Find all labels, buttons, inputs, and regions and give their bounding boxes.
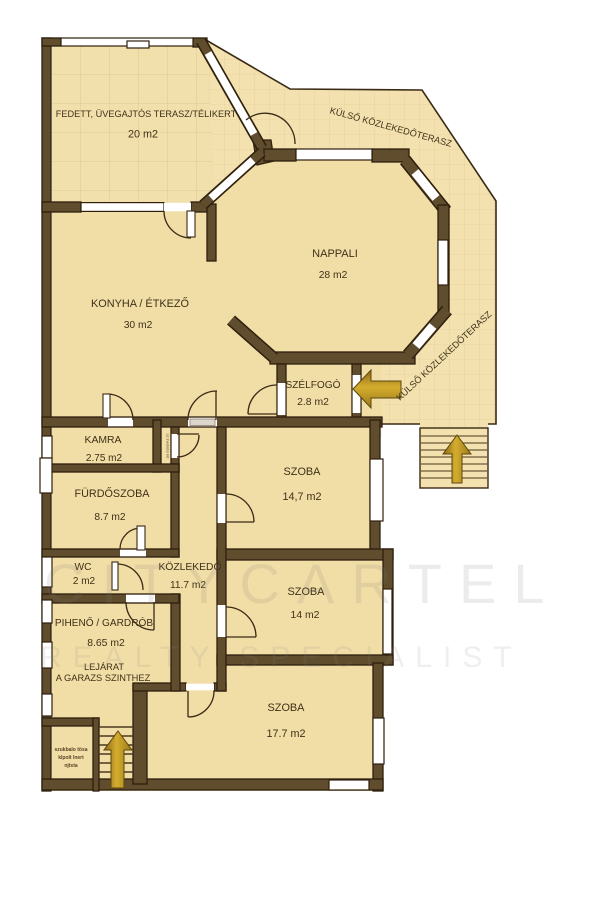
svg-text:SZÉLFOGÓ: SZÉLFOGÓ	[286, 378, 341, 391]
svg-text:17.7 m2: 17.7 m2	[266, 728, 305, 740]
svg-text:FEDETT, ÜVEGAJTÓS TERASZ/TÉLIK: FEDETT, ÜVEGAJTÓS TERASZ/TÉLIKERT	[56, 109, 237, 119]
svg-text:klpolt lnert: klpolt lnert	[58, 755, 84, 761]
svg-text:2.75 m2: 2.75 m2	[86, 453, 123, 464]
svg-text:KONYHA / ÉTKEZŐ: KONYHA / ÉTKEZŐ	[91, 296, 189, 310]
svg-text:8.7 m2: 8.7 m2	[94, 512, 125, 523]
svg-text:30 m2: 30 m2	[124, 320, 153, 331]
svg-text:SZOBA: SZOBA	[284, 466, 322, 478]
svg-text:NAPPALI: NAPPALI	[312, 248, 358, 260]
svg-text:KAMRA: KAMRA	[85, 435, 122, 446]
svg-text:PIHENŐ / GARDRÓB: PIHENŐ / GARDRÓB	[55, 615, 153, 629]
svg-text:20 m2: 20 m2	[128, 129, 158, 141]
svg-text:njtsta: njtsta	[64, 763, 78, 769]
svg-text:FÜRDŐSZOBA: FÜRDŐSZOBA	[75, 486, 151, 500]
svg-text:28 m2: 28 m2	[319, 270, 348, 281]
svg-text:CITYCARTEL: CITYCARTEL	[44, 552, 561, 615]
svg-text:A GARAZS SZINTHEZ: A GARAZS SZINTHEZ	[56, 673, 151, 683]
svg-text:SZOBA: SZOBA	[268, 702, 306, 714]
svg-text:szukbalo tösa: szukbalo tösa	[54, 747, 87, 753]
svg-text:2.8 m2: 2.8 m2	[297, 397, 329, 408]
svg-text:sz.lnedabó krt: sz.lnedabó krt	[166, 434, 171, 460]
svg-text:REALTY SPECIALIST: REALTY SPECIALIST	[40, 641, 523, 674]
svg-text:14,7 m2: 14,7 m2	[282, 491, 321, 503]
